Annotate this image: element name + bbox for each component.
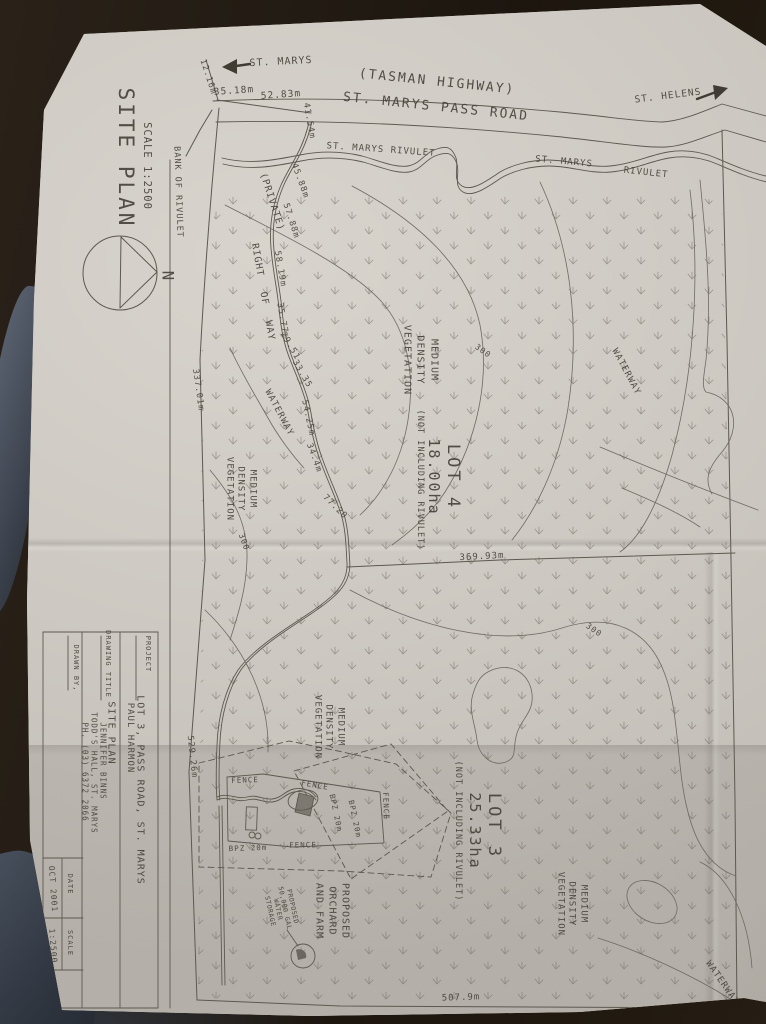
drawn-by-phone: PH. (03) 6372 2066 xyxy=(81,722,90,821)
north-label: N xyxy=(159,271,178,282)
orchard-label: PROPOSED ORCHARD AND FARM xyxy=(313,883,352,939)
drawing-title-label: DRAWING TITLE xyxy=(104,630,112,698)
building-solid xyxy=(295,793,314,816)
fence-label-4: FENCE xyxy=(381,792,391,820)
project-label: PROJECT xyxy=(144,636,152,673)
fence-label-1: FENCE xyxy=(231,775,259,785)
site-plan-scale: SCALE 1:2500 xyxy=(141,122,153,210)
lot3-area: 25.33ha xyxy=(466,792,484,869)
bpz-label-1: BPZ 20m xyxy=(229,843,268,853)
project-client: PAUL HARMON xyxy=(125,703,135,774)
project-name: LOT 3, PASS ROAD, ST. MARYS xyxy=(135,695,146,885)
lot3-name: LOT 3 xyxy=(484,793,504,859)
st-marys-arrowhead-icon xyxy=(222,59,237,74)
vegetation-label-lot4: MEDIUM DENSITY VEGETATION xyxy=(400,325,441,395)
site-plan-title: SITE PLAN xyxy=(114,88,138,229)
title-block-lines xyxy=(43,160,170,1008)
drawn-by-name: JENNIFER BINNS xyxy=(99,722,108,799)
vegetation-label-homestead: MEDIUM DENSITY VEGETATION xyxy=(311,695,346,759)
st-helens-arrowhead-icon xyxy=(713,85,728,100)
fence-label-3: FENCE xyxy=(289,840,317,849)
st-marys-arrow-icon xyxy=(236,64,250,66)
compass-icon xyxy=(83,236,157,310)
lot4-area: 18.00ha xyxy=(425,438,443,515)
lot4-name: LOT 4 xyxy=(443,444,463,510)
dim-507-9: 507.9m xyxy=(442,992,481,1003)
lot3-note: (NOT INCLUDING RIVULET) xyxy=(453,761,463,902)
paper-sheet: SITE PLAN SCALE 1:2500 N ST. MARYS (TASM… xyxy=(0,0,766,1024)
drawn-by-address: TODD'S HALL, ST. MARYS xyxy=(90,712,99,833)
drawn-by-label: DRAWN BY, xyxy=(72,645,80,692)
vegetation-label-lot3: MEDIUM DENSITY VEGETATION xyxy=(554,872,589,936)
lot4-note: (NOT INCLUDING RIVULET) xyxy=(415,410,425,551)
date-label: DATE xyxy=(66,874,74,895)
photo-of-site-plan: SITE PLAN SCALE 1:2500 N ST. MARYS (TASM… xyxy=(0,0,766,1024)
vegetation-label-west: MEDIUM DENSITY VEGETATION xyxy=(223,457,258,521)
scale-label: SCALE xyxy=(66,930,74,956)
